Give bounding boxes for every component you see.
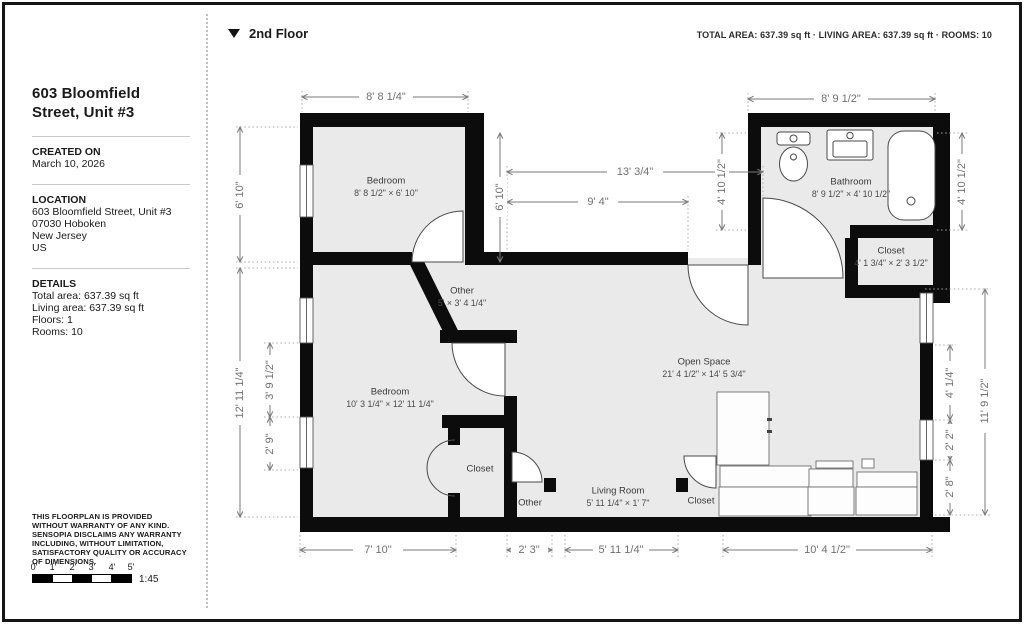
dim-bottom-c: 5' 11 1/4": [565, 543, 678, 557]
location-line: 603 Bloomfield Street, Unit #3: [32, 206, 190, 218]
floor-header[interactable]: 2nd Floor: [228, 26, 308, 41]
created-on-value: March 10, 2026: [32, 158, 190, 170]
dim-bottom-b: 2' 3": [507, 543, 552, 557]
scale-tick: 5': [128, 562, 135, 572]
location-label: LOCATION: [32, 194, 190, 206]
dim-right-seg-c: 2' 8": [943, 460, 957, 515]
svg-text:8' 8 1/2" × 6' 10": 8' 8 1/2" × 6' 10": [354, 188, 418, 198]
divider: [32, 184, 190, 185]
svg-text:5' 11 1/4": 5' 11 1/4": [599, 544, 644, 556]
svg-text:8' 9 1/2": 8' 9 1/2": [821, 93, 861, 105]
window: [300, 298, 313, 343]
bathtub-icon: [888, 131, 935, 220]
details-line: Rooms: 10: [32, 326, 190, 338]
counter: [808, 487, 854, 515]
svg-text:4' 10 1/2": 4' 10 1/2": [716, 159, 728, 205]
counter: [719, 487, 811, 516]
kitchen-sink: [816, 461, 853, 468]
svg-text:2' 2": 2' 2": [944, 429, 956, 450]
scale-tick: 1': [50, 562, 57, 572]
svg-text:Bedroom: Bedroom: [371, 387, 410, 398]
sidebar-separator: [206, 14, 208, 608]
scale-tick: 3': [89, 562, 96, 572]
floor-label: 2nd Floor: [249, 26, 308, 41]
dim-left-window-b: 2' 9": [263, 417, 277, 470]
svg-text:4' 1/4": 4' 1/4": [944, 368, 956, 399]
svg-text:10' 3 1/4" × 12' 11 1/4": 10' 3 1/4" × 12' 11 1/4": [346, 399, 433, 409]
svg-text:9' 4": 9' 4": [587, 196, 608, 208]
kitchen-island: [717, 392, 769, 465]
scale-tick: 0': [31, 562, 38, 572]
dim-right-height: 11' 9 1/2": [978, 289, 992, 515]
dim-bedroom-top-height-left: 6' 10": [233, 127, 247, 262]
dim-right-seg-b: 2' 2": [943, 420, 957, 460]
sidebar: 603 Bloomfield Street, Unit #3 CREATED O…: [32, 84, 190, 340]
svg-text:Bedroom: Bedroom: [367, 176, 406, 187]
svg-text:2' 9": 2' 9": [264, 433, 276, 454]
svg-text:Other: Other: [518, 498, 542, 509]
svg-text:7' 10": 7' 10": [364, 544, 392, 556]
details-section: DETAILS Total area: 637.39 sq ft Living …: [32, 278, 190, 338]
scale-bar: 0' 1' 2' 3' 4' 5' 1:45: [32, 562, 202, 583]
svg-text:8' 8 1/4": 8' 8 1/4": [366, 91, 406, 103]
created-on-label: CREATED ON: [32, 146, 190, 158]
svg-text:21' 4 1/2" × 14' 5 3/4": 21' 4 1/2" × 14' 5 3/4": [662, 369, 745, 379]
scale-tick: 4': [109, 562, 116, 572]
floor-collapse-icon[interactable]: [228, 29, 240, 38]
svg-text:10' 4 1/2": 10' 4 1/2": [804, 544, 850, 556]
scale-segments: [32, 574, 132, 583]
dim-bedroom-top-width: 8' 8 1/4": [302, 90, 468, 104]
window: [920, 420, 933, 460]
scale-tick-labels: 0' 1' 2' 3' 4' 5': [32, 562, 202, 573]
dim-bedroom-top-height-right: 6' 10": [493, 133, 507, 262]
location-line: New Jersey: [32, 230, 190, 242]
created-on-section: CREATED ON March 10, 2026: [32, 146, 190, 170]
svg-text:Bathroom: Bathroom: [830, 177, 871, 188]
svg-text:Closet: Closet: [878, 246, 905, 257]
dim-bathroom-height-left: 4' 10 1/2": [715, 133, 729, 230]
window: [300, 165, 313, 217]
dim-bathroom-width: 8' 9 1/2": [748, 92, 935, 106]
window: [920, 293, 933, 343]
toilet-icon: [777, 132, 810, 181]
svg-text:4' 1 3/4" × 2' 3 1/2": 4' 1 3/4" × 2' 3 1/2": [854, 258, 927, 268]
svg-text:12' 11 1/4": 12' 11 1/4": [234, 367, 246, 418]
dim-left-window-a: 3' 9 1/2": [263, 343, 277, 417]
room-label-closet-bedroom: Closet: [467, 464, 494, 475]
svg-text:5' 11 1/4" × 1' 7": 5' 11 1/4" × 1' 7": [587, 498, 650, 508]
disclaimer-text: THIS FLOORPLAN IS PROVIDED WITHOUT WARRA…: [32, 512, 190, 566]
details-label: DETAILS: [32, 278, 190, 290]
svg-text:13' 3/4": 13' 3/4": [617, 166, 654, 178]
divider: [32, 268, 190, 269]
counter: [720, 466, 811, 487]
room-label-closet-living: Closet: [688, 496, 715, 507]
svg-text:2' 8": 2' 8": [944, 476, 956, 497]
svg-text:6' 10": 6' 10": [234, 181, 246, 209]
scale-tick: 2': [70, 562, 77, 572]
dim-left-height: 12' 11 1/4": [233, 268, 247, 517]
svg-text:Closet: Closet: [688, 496, 715, 507]
counter: [856, 487, 917, 515]
counter: [809, 469, 853, 487]
details-line: Living area: 637.39 sq ft: [32, 302, 190, 314]
counter: [857, 472, 917, 487]
dim-bottom-a: 7' 10": [300, 543, 456, 557]
svg-text:6' 10": 6' 10": [494, 183, 506, 211]
dim-bottom-d: 10' 4 1/2": [723, 543, 932, 557]
location-line: 07030 Hoboken: [32, 218, 190, 230]
svg-text:Open Space: Open Space: [678, 357, 731, 368]
svg-text:3' 9 1/2": 3' 9 1/2": [264, 360, 276, 400]
svg-text:Other: Other: [450, 286, 474, 297]
window: [300, 417, 313, 468]
details-line: Floors: 1: [32, 314, 190, 326]
page-title: 603 Bloomfield Street, Unit #3: [32, 84, 190, 122]
svg-text:8' 9 1/2" × 4' 10 1/2": 8' 9 1/2" × 4' 10 1/2": [812, 189, 890, 199]
details-line: Total area: 637.39 sq ft: [32, 290, 190, 302]
svg-text:5' × 3' 4 1/4": 5' × 3' 4 1/4": [438, 298, 486, 308]
location-section: LOCATION 603 Bloomfield Street, Unit #3 …: [32, 194, 190, 254]
dim-bathroom-height-right: 4' 10 1/2": [955, 133, 969, 230]
svg-text:11' 9 1/2": 11' 9 1/2": [979, 378, 991, 423]
floorplan-page: 8' 8 1/4" 8' 9 1/2" 13' 3/4" 9' 4" 6' 10: [0, 0, 1024, 624]
area-summary: TOTAL AREA: 637.39 sq ft · LIVING AREA: …: [697, 30, 992, 40]
sink-icon: [827, 130, 873, 160]
svg-text:Living Room: Living Room: [592, 486, 645, 497]
dim-mid-inner-width: 9' 4": [507, 195, 688, 209]
location-line: US: [32, 242, 190, 254]
divider: [32, 136, 190, 137]
room-label-other-bottom: Other: [518, 498, 542, 509]
scale-ratio: 1:45: [139, 575, 158, 585]
svg-text:2' 3": 2' 3": [518, 544, 539, 556]
dim-right-seg-a: 4' 1/4": [943, 345, 957, 420]
svg-text:4' 10 1/2": 4' 10 1/2": [956, 159, 968, 205]
kitchen-sink: [862, 459, 874, 468]
svg-text:Closet: Closet: [467, 464, 494, 475]
